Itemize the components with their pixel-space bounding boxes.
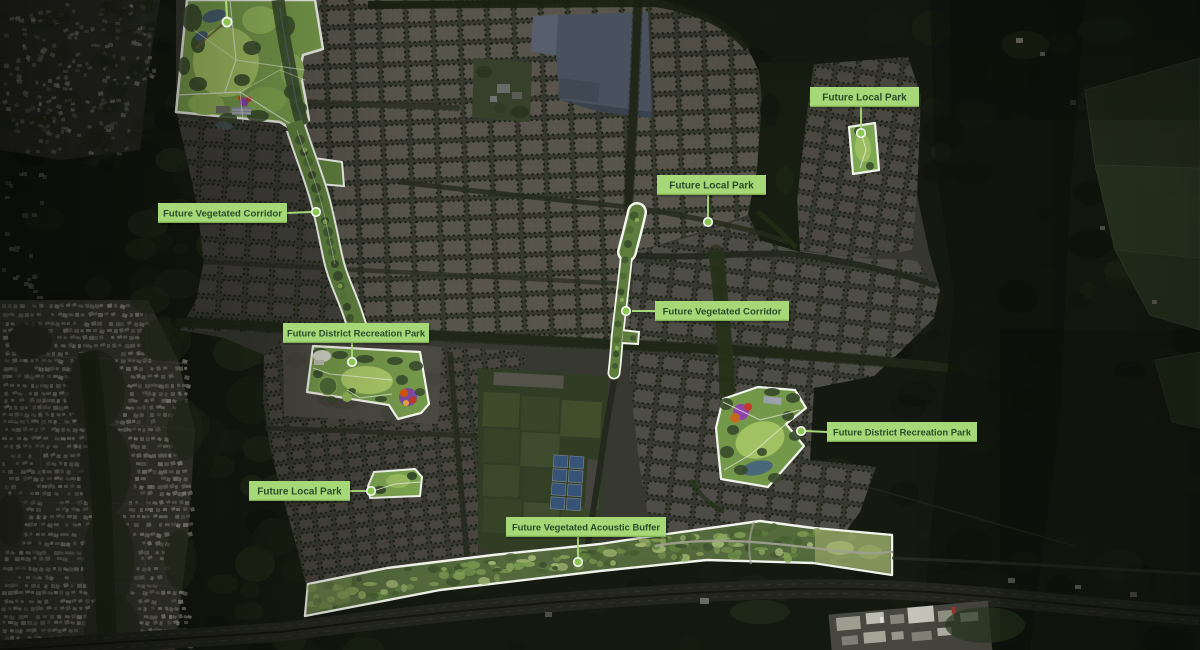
svg-text:Future District Recreation Par: Future District Recreation Park xyxy=(833,427,972,438)
svg-text:Future Local Park: Future Local Park xyxy=(257,487,342,498)
svg-text:Future District Recreation Par: Future District Recreation Park xyxy=(287,328,426,339)
svg-text:Future Vegetated Acoustic Buff: Future Vegetated Acoustic Buffer xyxy=(512,522,660,533)
svg-text:Future Local Park: Future Local Park xyxy=(822,93,907,104)
svg-text:Future Vegetated Corridor: Future Vegetated Corridor xyxy=(163,209,282,220)
svg-text:Future Vegetated Corridor: Future Vegetated Corridor xyxy=(663,307,782,318)
svg-text:Future Local Park: Future Local Park xyxy=(669,181,754,192)
